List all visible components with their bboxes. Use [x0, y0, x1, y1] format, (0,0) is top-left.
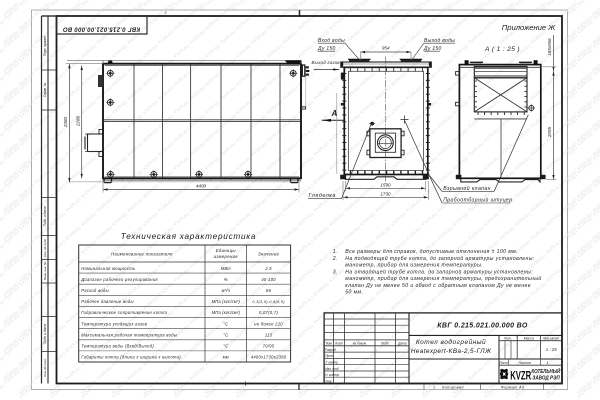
svg-text:КОТЕЛЬНЫЙ: КОТЕЛЬНЫЙ	[531, 367, 560, 375]
svg-text:Вход воды: Вход воды	[318, 38, 345, 44]
svg-text:70/95: 70/95	[263, 344, 275, 349]
svg-text:°С: °С	[223, 344, 228, 349]
svg-text:Пров.: Пров.	[325, 354, 334, 358]
svg-text:Н. контр.: Н. контр.	[325, 373, 339, 377]
svg-text:Инв. № дубл.: Инв. № дубл.	[43, 238, 47, 257]
svg-text:Единицы: Единицы	[216, 248, 237, 253]
svg-text:МВт: МВт	[221, 266, 232, 271]
svg-text:КВГ 0.215.021.00.000 ВО: КВГ 0.215.021.00.000 ВО	[63, 25, 141, 31]
svg-text:40-100: 40-100	[261, 277, 276, 282]
svg-text:Формат А3: Формат А3	[501, 385, 525, 389]
svg-text:Изм: Изм	[326, 342, 333, 346]
svg-text:Листов: Листов	[517, 361, 531, 365]
svg-text:Рабочее давление воды: Рабочее давление воды	[81, 299, 134, 304]
svg-text:1: 1	[433, 385, 435, 389]
svg-text:Подп.: Подп.	[381, 342, 390, 346]
svg-text:А: А	[331, 109, 338, 118]
svg-text:Наименование показателя: Наименование показателя	[111, 252, 173, 257]
svg-text:4400х1730х2380: 4400х1730х2380	[251, 355, 287, 360]
svg-text:Взрывной клапан: Взрывной клапан	[443, 185, 491, 192]
svg-text:не более 220: не более 220	[254, 321, 283, 326]
svg-text:2.: 2.	[332, 256, 337, 262]
svg-text:KVZR: KVZR	[510, 369, 531, 383]
svg-text:Копировал: Копировал	[442, 385, 464, 389]
svg-text:Ду 150: Ду 150	[423, 46, 442, 52]
svg-text:Инв. № подл.: Инв. № подл.	[43, 358, 47, 377]
svg-text:клапан Ду не менее 50 и обвод: клапан Ду не менее 50 и обвод с обратным…	[345, 283, 531, 289]
svg-text:3.: 3.	[333, 269, 337, 275]
svg-text:Т. контр.: Т. контр.	[325, 361, 339, 365]
svg-text:Перв. примен.: Перв. примен.	[43, 35, 47, 56]
svg-text:Дата: Дата	[397, 342, 407, 346]
svg-text:Температура уходящих газов: Температура уходящих газов	[81, 321, 148, 326]
svg-text:0,07(0,7): 0,07(0,7)	[259, 310, 278, 315]
svg-text:Лист: Лист	[498, 361, 508, 365]
svg-text:Номинальная мощность: Номинальная мощность	[81, 266, 135, 271]
svg-text:Котел водогрейный: Котел водогрейный	[416, 338, 486, 346]
svg-text:Диапазон рабочего регулировани: Диапазон рабочего регулирования	[80, 277, 158, 282]
svg-text:1730: 1730	[380, 191, 391, 196]
svg-text:954: 954	[382, 46, 390, 51]
svg-text:2280: 2280	[76, 115, 81, 127]
svg-text:1 : 25: 1 : 25	[546, 347, 558, 352]
svg-text:№ докум.: № докум.	[353, 342, 367, 346]
svg-text:Подп. и дата: Подп. и дата	[43, 206, 47, 226]
svg-text:Взам. инв. №: Взам. инв. №	[43, 261, 47, 280]
svg-text:Все размеры для справок, допус: Все размеры для справок, допустимые откл…	[345, 249, 518, 255]
svg-text:Справ. №: Справ. №	[43, 82, 47, 97]
svg-text:Разраб.: Разраб.	[325, 348, 337, 352]
svg-text:Нач. отд: Нач. отд	[325, 367, 339, 371]
svg-text:Расход воды: Расход воды	[81, 288, 109, 293]
svg-text:1590: 1590	[380, 182, 391, 187]
svg-text:Техническая характеристика: Техническая характеристика	[121, 232, 256, 241]
svg-text:На отводящей трубе котла, до з: На отводящей трубе котла, до запорной ар…	[345, 268, 533, 275]
svg-text:86: 86	[266, 288, 272, 293]
svg-text:ЗАВОД РЭП: ЗАВОД РЭП	[532, 375, 560, 381]
svg-text:°С: °С	[223, 332, 228, 337]
svg-text:КВГ 0.215.021.00.000 ВО: КВГ 0.215.021.00.000 ВО	[437, 323, 528, 330]
svg-text:4400: 4400	[196, 184, 207, 189]
svg-text:Масштаб: Масштаб	[543, 337, 559, 341]
svg-text:А ( 1 : 25 ): А ( 1 : 25 )	[484, 46, 520, 53]
svg-text:1: 1	[547, 361, 549, 365]
svg-text:Значение: Значение	[258, 252, 280, 257]
svg-text:Выход газов: Выход газов	[312, 60, 341, 65]
svg-text:115: 115	[265, 332, 273, 337]
svg-text:1.: 1.	[333, 249, 337, 255]
svg-text:Габариты котла (длина х ширина: Габариты котла (длина х ширина х высота)	[81, 355, 181, 360]
svg-text:°С: °С	[223, 321, 228, 326]
svg-text:2,5: 2,5	[264, 266, 272, 271]
svg-text:Масса: Масса	[524, 337, 534, 341]
svg-text:МПа (кгс/см²): МПа (кгс/см²)	[212, 310, 241, 315]
svg-text:м³/ч: м³/ч	[222, 288, 231, 293]
svg-text:Выход воды: Выход воды	[424, 38, 455, 44]
svg-text:мм: мм	[223, 355, 229, 360]
svg-text:На подводящей трубе котла, до: На подводящей трубе котла, до запорной а…	[345, 255, 535, 262]
svg-text:Лист: Лист	[334, 342, 344, 346]
svg-text:Приложение Ж: Приложение Ж	[502, 23, 556, 32]
svg-text:измерения: измерения	[214, 254, 239, 259]
svg-text:Heatexpert-КВа-2,5-ГЛЖ: Heatexpert-КВа-2,5-ГЛЖ	[411, 348, 492, 355]
svg-text:Максимальная рабочая температу: Максимальная рабочая температура воды	[81, 332, 177, 337]
svg-text:Утв.: Утв.	[325, 379, 332, 383]
svg-text:манометр, прибор для измерения: манометр, прибор для измерения температу…	[345, 275, 541, 282]
svg-text:2055: 2055	[547, 126, 552, 138]
svg-text:Лит.: Лит.	[503, 337, 512, 341]
svg-text:%: %	[224, 277, 228, 282]
svg-text:Температура воды (Вход/Выход): Температура воды (Вход/Выход)	[81, 344, 154, 349]
svg-text:Пробоотборный штуцер: Пробоотборный штуцер	[443, 197, 512, 204]
svg-text:2380: 2380	[63, 116, 68, 128]
svg-text:Гидравлическое сопротивление к: Гидравлическое сопротивление котла	[81, 310, 167, 315]
svg-text:Подп. и дата: Подп. и дата	[43, 324, 47, 344]
svg-text:50 мм.: 50 мм.	[345, 290, 363, 296]
svg-text:185х956: 185х956	[547, 38, 552, 56]
svg-text:Ду 150: Ду 150	[317, 46, 336, 52]
svg-text:манометр, прибор для измерения: манометр, прибор для измерения температу…	[345, 263, 483, 269]
svg-text:МПа (кгс/см²): МПа (кгс/см²)	[212, 299, 241, 304]
svg-text:0,3(3,0)-0,6(6,0): 0,3(3,0)-0,6(6,0)	[252, 300, 285, 304]
